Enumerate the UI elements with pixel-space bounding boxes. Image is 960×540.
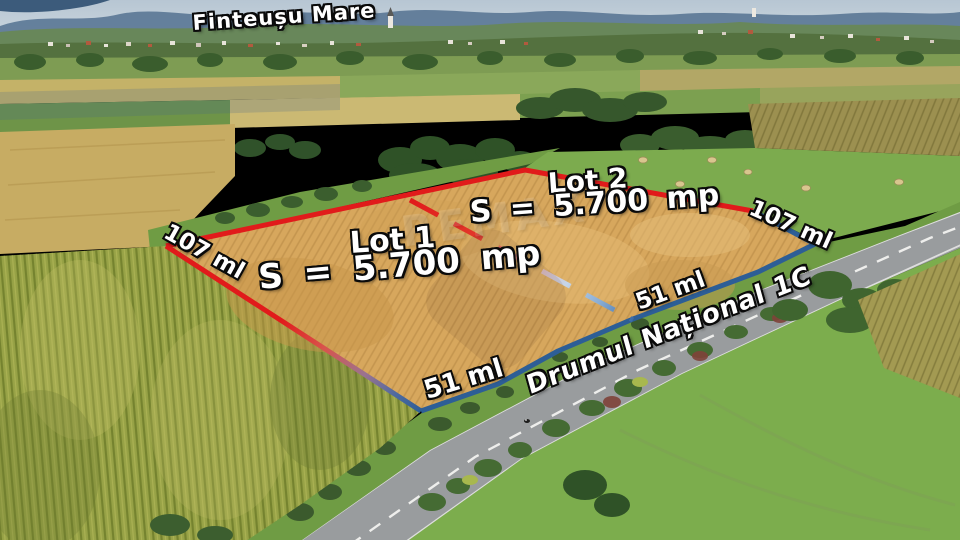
- vehicle-on-road: [524, 419, 530, 423]
- aerial-land-listing-photo: REMAX Finteușu Mare Lot 2 S = 5.700 mp L…: [0, 0, 960, 540]
